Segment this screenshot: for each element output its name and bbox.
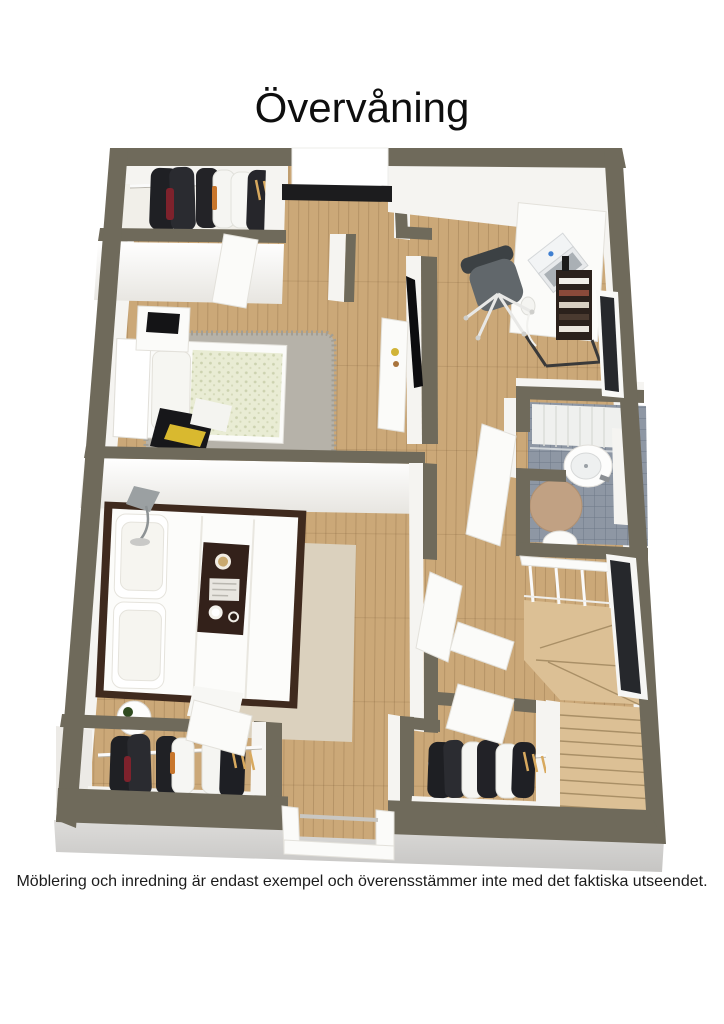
radio <box>146 312 180 334</box>
top-wall-right <box>388 148 626 168</box>
closet-right-wall-face <box>264 166 286 240</box>
bottle <box>562 256 569 271</box>
balcony-door <box>282 790 394 860</box>
top-window <box>292 148 388 186</box>
breakfast-tray <box>197 542 249 635</box>
media-cabinet <box>378 318 408 432</box>
toilet-lid <box>530 480 582 532</box>
hanging-clothes-top <box>149 167 276 233</box>
bedroom-east-wall <box>344 234 356 302</box>
wall-closet-bedroom <box>94 228 286 308</box>
floor-plan-rendering <box>0 0 724 1024</box>
bottle-green <box>123 707 133 717</box>
floor-plan-page: Övervåning <box>0 0 724 1024</box>
hanging-clothes-right <box>427 740 546 799</box>
top-wall-left <box>110 148 292 166</box>
disclaimer-text: Möblering och inredning är endast exempe… <box>0 873 724 891</box>
shower <box>530 404 626 452</box>
double-bed <box>95 501 307 724</box>
top-window-sill <box>282 184 392 202</box>
